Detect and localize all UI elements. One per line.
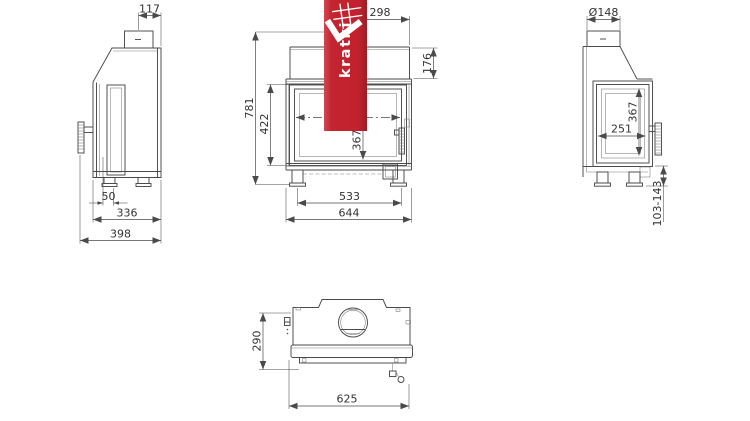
right-view-handle xyxy=(649,123,662,155)
left-view-body xyxy=(93,31,161,178)
right-view-feet xyxy=(595,172,643,186)
dim-top-depth: 290 xyxy=(251,331,264,352)
dim-total-height: 781 xyxy=(243,98,256,119)
dimension-drawing: 117 50 336 398 xyxy=(0,0,750,421)
right-side-view: Ø148 367 251 103-143 xyxy=(583,6,668,226)
dim-door-height: 422 xyxy=(258,114,271,135)
dim-flue-from-rear: 117 xyxy=(139,3,160,16)
front-view-handle xyxy=(395,128,405,154)
dim-front-width: 625 xyxy=(337,393,358,406)
right-view-dimensions: Ø148 367 251 103-143 xyxy=(587,6,668,226)
dim-hood-height: 176 xyxy=(421,53,434,74)
dim-flue-from-right: 298 xyxy=(370,6,391,19)
top-view-handle xyxy=(390,363,405,383)
kratki-brand-ribbon: kratki xyxy=(324,0,367,131)
right-view-body xyxy=(583,31,653,177)
dim-front-offset: 50 xyxy=(102,190,116,203)
left-side-view: 117 50 336 398 xyxy=(78,3,161,244)
dim-glass-height: 367 xyxy=(351,130,364,151)
kratki-grate-arrow-icon xyxy=(324,0,367,46)
left-view-dimensions: 117 50 336 398 xyxy=(80,3,161,244)
dim-legs-height-range: 103-143 xyxy=(651,181,664,227)
dim-total-depth: 398 xyxy=(110,228,131,241)
front-view-base xyxy=(286,164,412,187)
left-view-handle xyxy=(78,122,93,153)
top-view: 290 625 xyxy=(251,300,413,410)
dim-side-glass-width: 251 xyxy=(611,123,632,136)
top-view-dimensions: 290 625 xyxy=(251,313,410,409)
dim-body-depth: 336 xyxy=(117,207,138,220)
left-view-feet xyxy=(102,178,151,187)
dim-total-width: 644 xyxy=(339,207,360,220)
dim-flue-diameter: Ø148 xyxy=(589,6,619,19)
technical-drawing-page: 117 50 336 398 xyxy=(0,0,750,421)
top-view-body xyxy=(285,300,413,364)
dim-side-glass-height: 367 xyxy=(627,102,640,123)
dim-glass-width: 533 xyxy=(339,190,360,203)
